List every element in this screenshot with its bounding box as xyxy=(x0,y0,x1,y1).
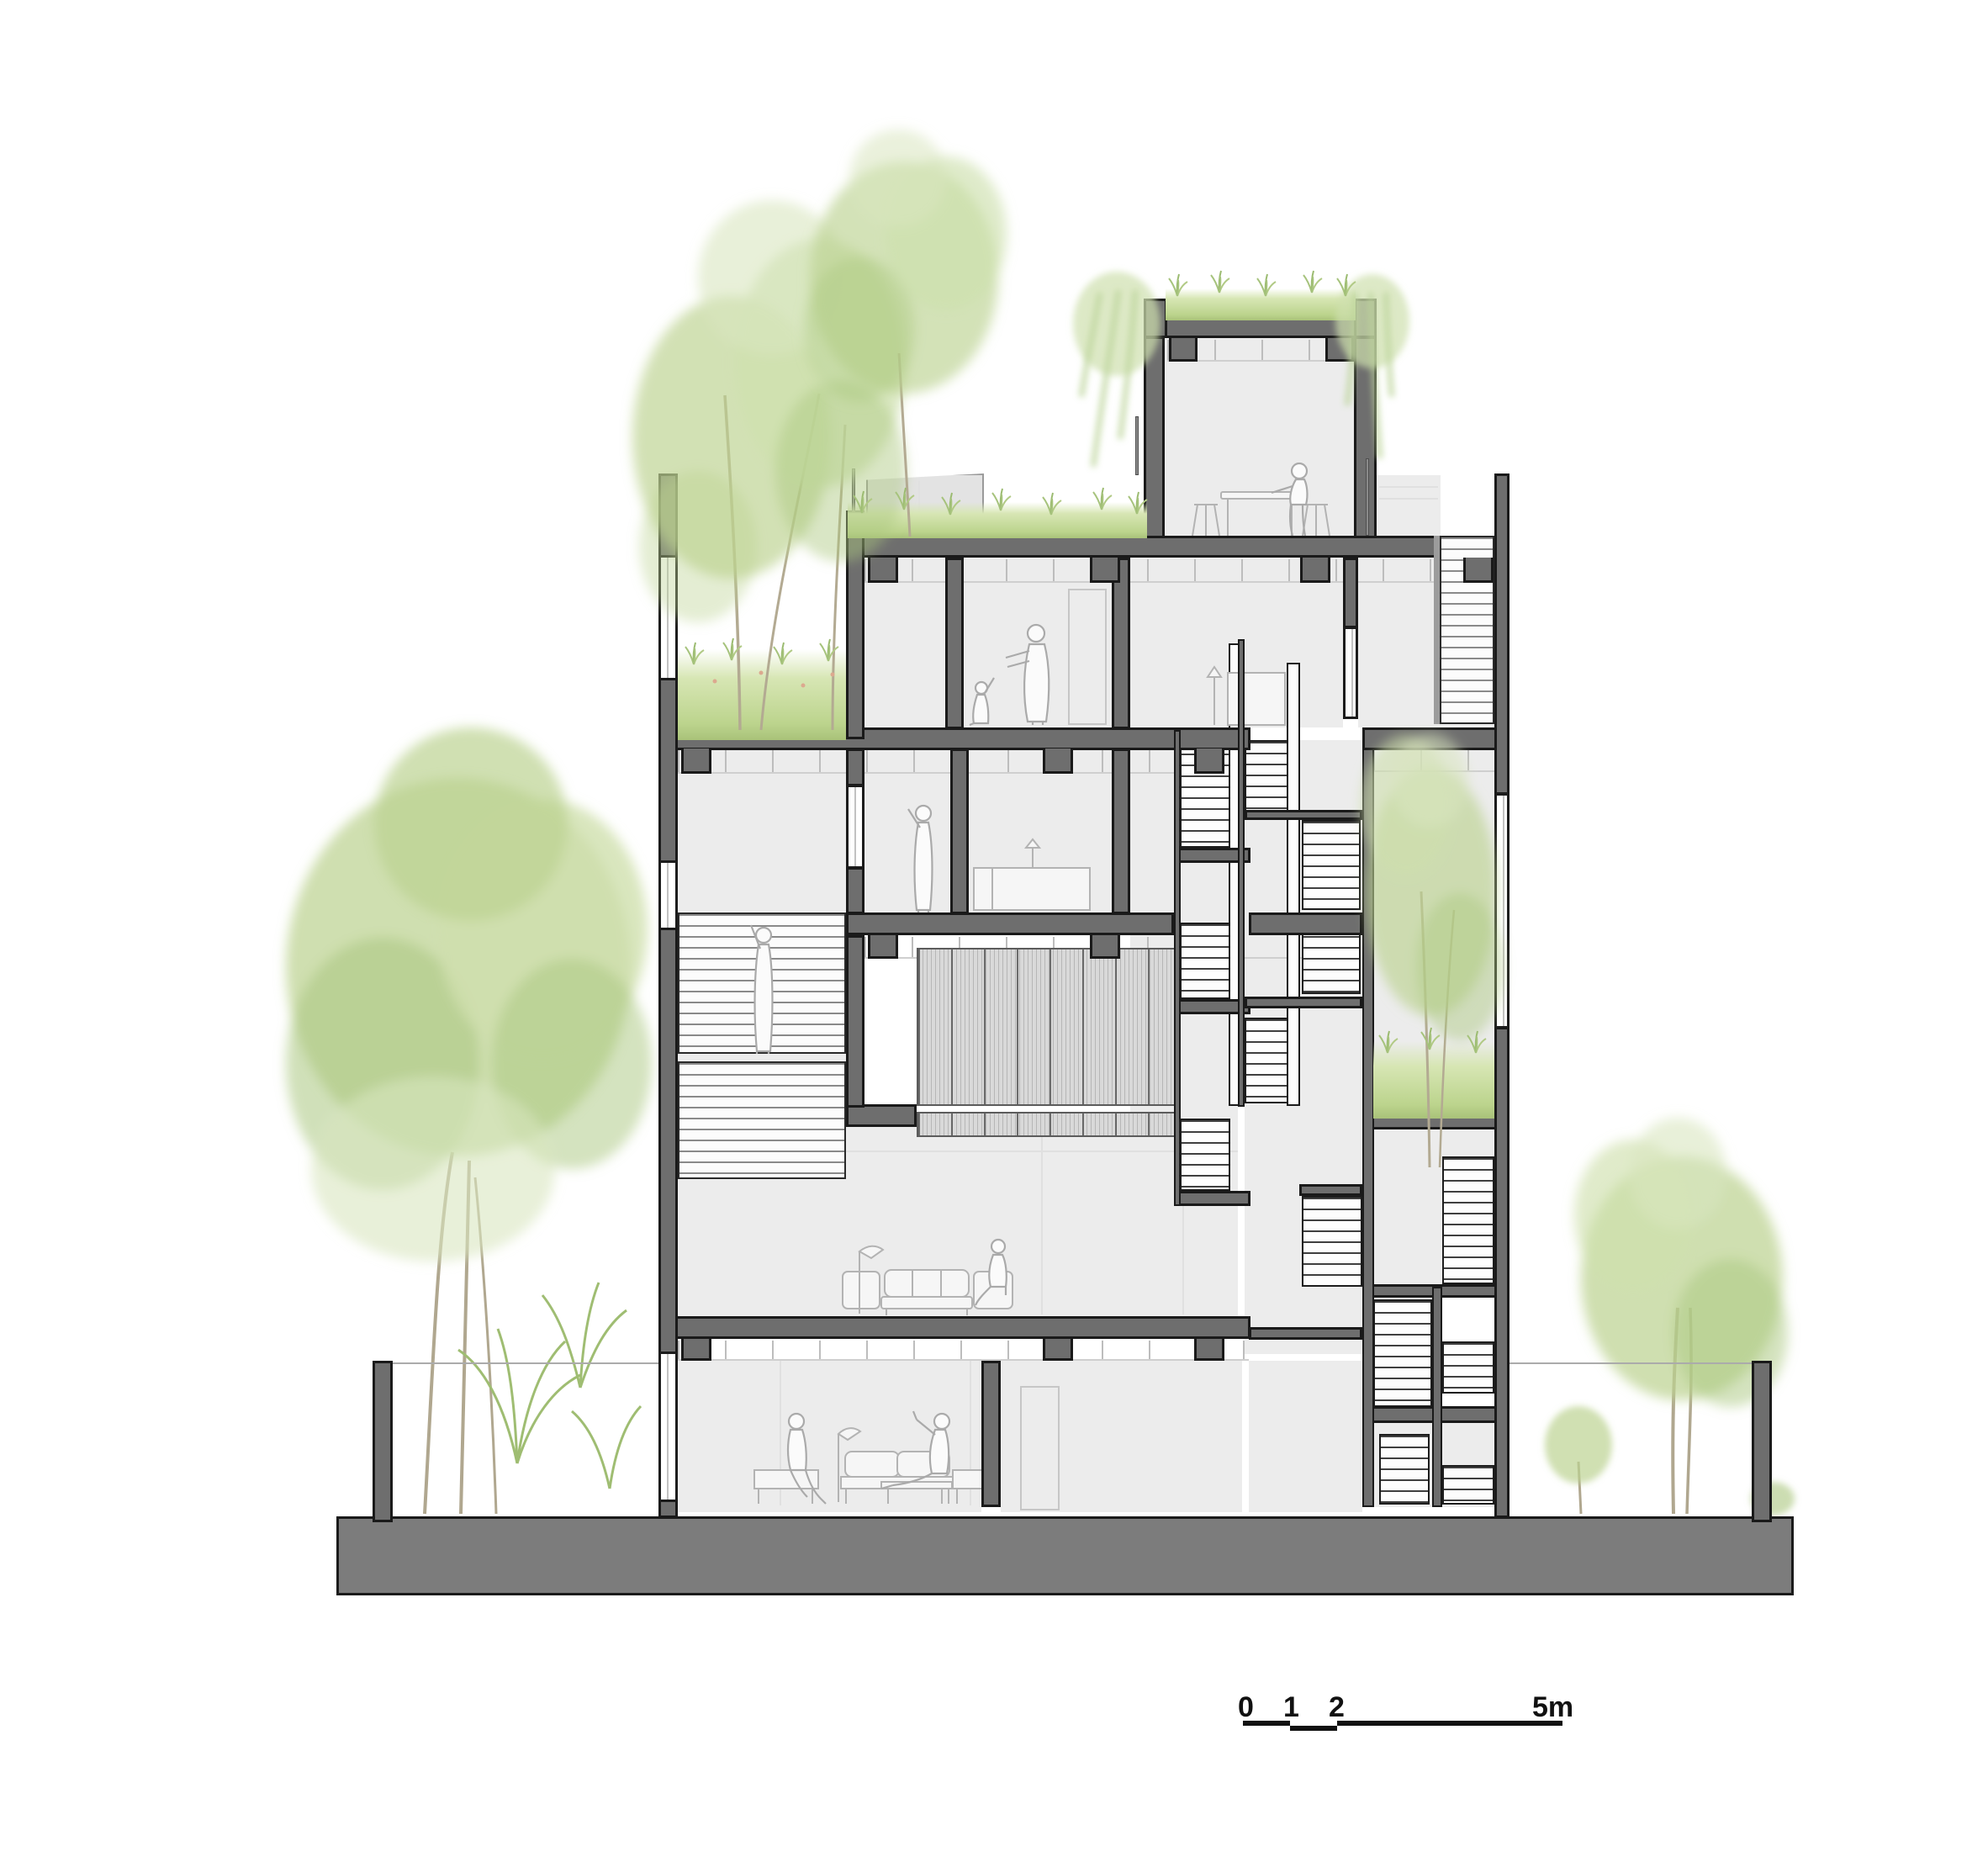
scale-label-0: 0 xyxy=(1238,1691,1254,1724)
scale-segment-0-1 xyxy=(1243,1721,1290,1726)
scale-segment-2-5 xyxy=(1337,1721,1562,1726)
courtyard-tree-right xyxy=(1361,733,1504,1167)
hanging-vines xyxy=(1073,272,1409,467)
scale-label-5m: 5m xyxy=(1532,1691,1573,1724)
scale-bar: 0 1 2 5m xyxy=(1228,1686,1581,1745)
architectural-section-canvas: 0 1 2 5m xyxy=(0,0,1988,1862)
roof-vegetation-layer xyxy=(0,0,1988,1862)
scale-segment-1-2 xyxy=(1290,1726,1337,1731)
scale-label-1: 1 xyxy=(1283,1691,1299,1724)
scale-label-2: 2 xyxy=(1329,1691,1345,1724)
